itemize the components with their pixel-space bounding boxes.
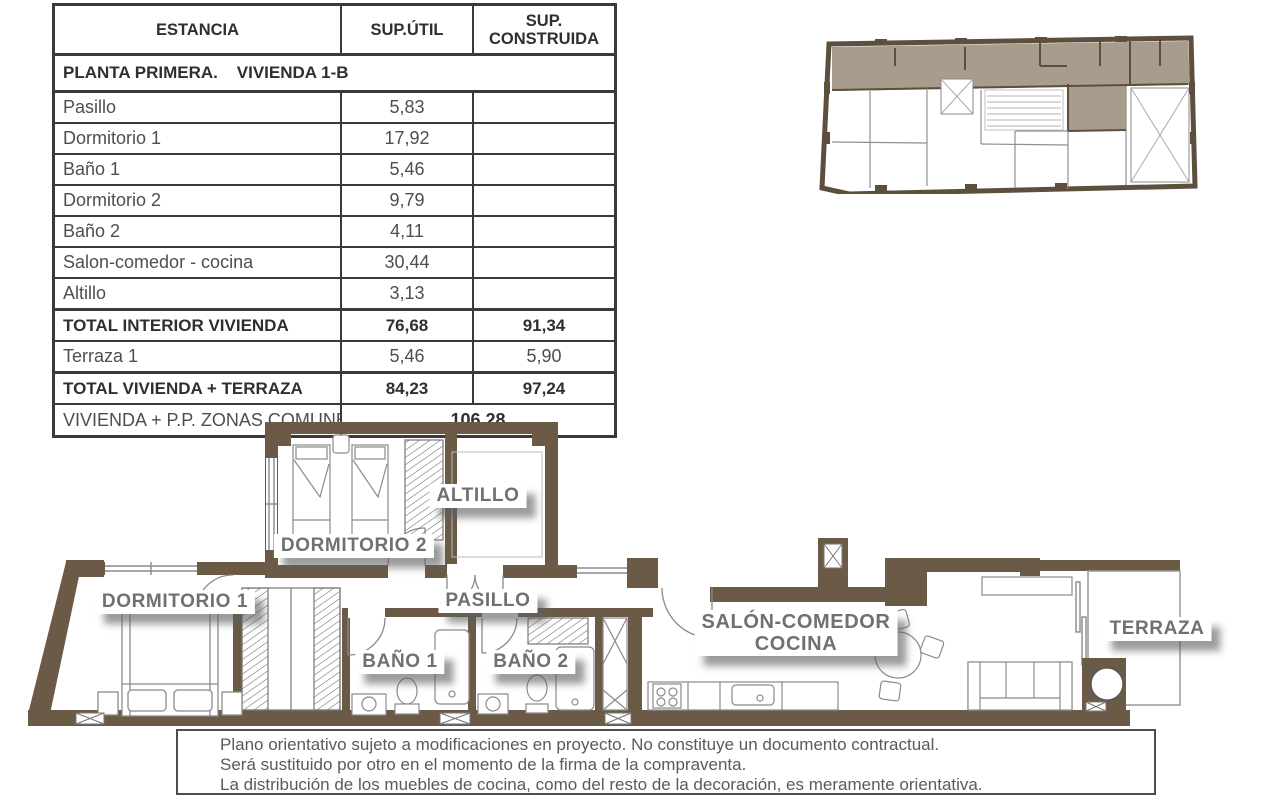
- console-icon: [982, 577, 1072, 595]
- room-cons: [473, 247, 616, 278]
- table-row: Altillo 3,13: [54, 278, 616, 310]
- total-terraza-cons: 97,24: [473, 373, 616, 405]
- label-pasillo: PASILLO: [438, 589, 537, 613]
- room-name: Salon-comedor - cocina: [54, 247, 342, 278]
- table-row: Baño 1 5,46: [54, 154, 616, 185]
- floor-plan-drawing: [20, 412, 1220, 732]
- room-name: Altillo: [54, 278, 342, 310]
- room-cons: [473, 216, 616, 247]
- total-terraza-util: 84,23: [341, 373, 473, 405]
- disclaimer-line: Será sustituido por otro en el momento d…: [220, 755, 1144, 775]
- table-row: Pasillo 5,83: [54, 92, 616, 124]
- col-header-construida: SUP. CONSTRUIDA: [473, 5, 616, 55]
- room-cons: [473, 123, 616, 154]
- room-cons: [473, 278, 616, 310]
- areas-table: ESTANCIA SUP.ÚTIL SUP. CONSTRUIDA PLANTA…: [52, 3, 617, 438]
- table-row: Baño 2 4,11: [54, 216, 616, 247]
- key-plan-elevator-icon: [941, 79, 973, 114]
- total-terraza-label: TOTAL VIVIENDA + TERRAZA: [54, 373, 342, 405]
- apartment-floor-plan: DORMITORIO 1 DORMITORIO 2 ALTILLO PASILL…: [20, 412, 1220, 732]
- dormitorio2-beds-icon: [293, 435, 388, 537]
- room-name: Baño 2: [54, 216, 342, 247]
- label-bano1: BAÑO 1: [355, 650, 444, 674]
- label-terraza: TERRAZA: [1103, 617, 1212, 641]
- label-bano2: BAÑO 2: [486, 650, 575, 674]
- total-terraza-row: TOTAL VIVIENDA + TERRAZA 84,23 97,24: [54, 373, 616, 405]
- room-name: Terraza 1: [54, 341, 342, 373]
- utility-cupboard: [603, 618, 627, 710]
- table-section-row: PLANTA PRIMERA. VIVIENDA 1-B: [54, 55, 616, 92]
- table-row: Dormitorio 1 17,92: [54, 123, 616, 154]
- room-cons: [473, 92, 616, 124]
- label-salon-line2: COCINA: [702, 633, 891, 655]
- room-util: 17,92: [341, 123, 473, 154]
- table-row: Dormitorio 2 9,79: [54, 185, 616, 216]
- label-dormitorio1: DORMITORIO 1: [95, 590, 255, 614]
- label-altillo: ALTILLO: [430, 484, 527, 508]
- key-plan-patio-icon: [1131, 88, 1189, 182]
- room-name: Dormitorio 1: [54, 123, 342, 154]
- col-header-estancia: ESTANCIA: [54, 5, 342, 55]
- room-name: Baño 1: [54, 154, 342, 185]
- room-cons: [473, 185, 616, 216]
- sofa-icon: [968, 662, 1072, 710]
- disclaimer-line: Plano orientativo sujeto a modificacione…: [220, 735, 1144, 755]
- room-util: 5,46: [341, 154, 473, 185]
- total-interior-row: TOTAL INTERIOR VIVIENDA 76,68 91,34: [54, 310, 616, 342]
- shaft-icon: [824, 544, 842, 568]
- room-util: 30,44: [341, 247, 473, 278]
- label-dormitorio2: DORMITORIO 2: [274, 534, 434, 558]
- floorplan-sheet: ESTANCIA SUP.ÚTIL SUP. CONSTRUIDA PLANTA…: [0, 0, 1280, 800]
- room-name: Dormitorio 2: [54, 185, 342, 216]
- dormitorio1-bed-icon: [98, 600, 242, 716]
- terrace-table-icon: [1091, 668, 1123, 700]
- room-util: 4,11: [341, 216, 473, 247]
- terraza-row: Terraza 1 5,46 5,90: [54, 341, 616, 373]
- table-header-row: ESTANCIA SUP.ÚTIL SUP. CONSTRUIDA: [54, 5, 616, 55]
- label-salon-line1: SALÓN-COMEDOR: [702, 611, 891, 633]
- room-util: 3,13: [341, 278, 473, 310]
- section-title: PLANTA PRIMERA. VIVIENDA 1-B: [54, 55, 616, 92]
- room-util: 5,46: [341, 341, 473, 373]
- total-interior-label: TOTAL INTERIOR VIVIENDA: [54, 310, 342, 342]
- disclaimer-box: Plano orientativo sujeto a modificacione…: [176, 729, 1156, 795]
- total-interior-cons: 91,34: [473, 310, 616, 342]
- kitchen-counter-icon: [648, 682, 838, 710]
- disclaimer-line: La distribución de los muebles de cocina…: [220, 775, 1144, 795]
- label-salon-comedor: SALÓN-COMEDOR COCINA: [695, 610, 898, 656]
- room-cons: [473, 154, 616, 185]
- total-interior-util: 76,68: [341, 310, 473, 342]
- room-util: 9,79: [341, 185, 473, 216]
- room-util: 5,83: [341, 92, 473, 124]
- table-row: Salon-comedor - cocina 30,44: [54, 247, 616, 278]
- building-key-plan: [815, 22, 1200, 194]
- col-header-sup-util: SUP.ÚTIL: [341, 5, 473, 55]
- room-name: Pasillo: [54, 92, 342, 124]
- terraza-area: [1082, 571, 1180, 711]
- room-cons: 5,90: [473, 341, 616, 373]
- key-plan-drawing: [815, 22, 1200, 194]
